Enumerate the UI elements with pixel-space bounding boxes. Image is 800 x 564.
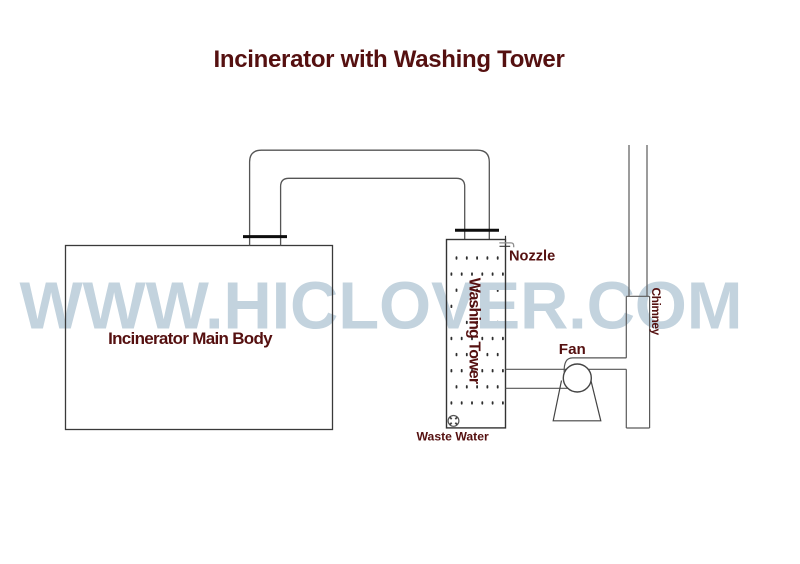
svg-text:Incinerator Main Body: Incinerator Main Body [108, 329, 273, 348]
svg-text:Nozzle: Nozzle [509, 249, 555, 265]
svg-text:Washing Tower: Washing Tower [465, 278, 482, 384]
svg-text:Waste Water: Waste Water [417, 429, 489, 443]
svg-text:Chimney: Chimney [649, 288, 663, 336]
svg-text:Incinerator with Washing Tower: Incinerator with Washing Tower [213, 46, 564, 73]
svg-text:Fan: Fan [559, 341, 586, 358]
